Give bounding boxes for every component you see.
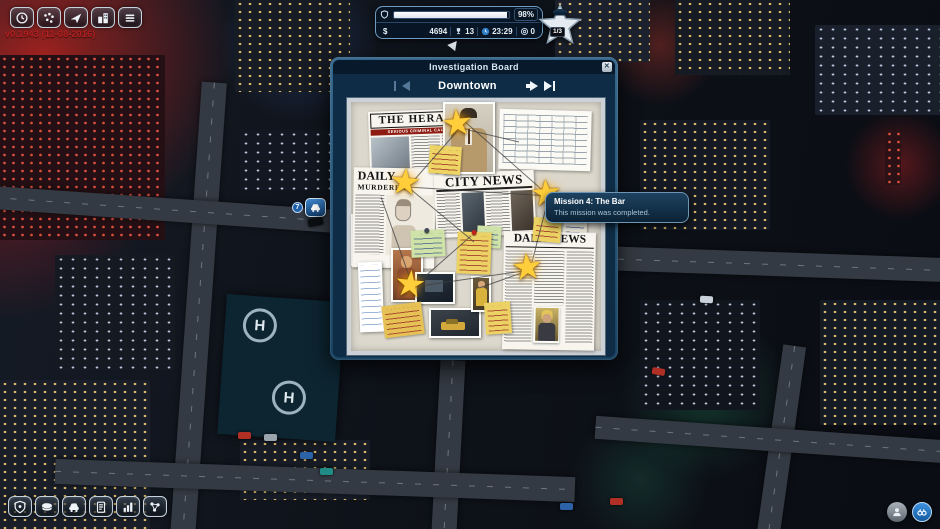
dialog-title: Investigation Board [429, 62, 519, 72]
sticky-note-yellow-bottom[interactable] [484, 301, 512, 335]
police-badge-icon[interactable] [8, 496, 32, 517]
game-screen: H H v0.1943 (11-08-2016) [0, 0, 940, 529]
trust-shield-icon [380, 10, 389, 19]
parked-car [610, 498, 623, 505]
nav-next-icon[interactable] [526, 81, 538, 91]
reports-icon[interactable] [89, 496, 113, 517]
corner-buttons [887, 502, 932, 522]
unit-count-badge: 7 [292, 202, 303, 213]
clock-icon[interactable] [10, 7, 34, 28]
parked-car [264, 434, 277, 441]
mission-star-4[interactable]: ★ [392, 264, 428, 303]
coin-icon [520, 27, 529, 36]
city-hall-icon[interactable] [91, 7, 115, 28]
mission-star-1[interactable]: ★ [439, 103, 475, 142]
photo-taxi[interactable] [429, 308, 481, 338]
rank-star-count: 1/3 [550, 27, 565, 37]
sticky-note-yellow[interactable] [428, 145, 462, 175]
person-icon[interactable] [887, 502, 907, 522]
navigation-arrow-icon[interactable] [64, 7, 88, 28]
close-icon[interactable]: ✕ [602, 62, 612, 72]
coin-counter: 0 [516, 27, 538, 36]
coin-value: 0 [531, 27, 535, 36]
nav-first-icon[interactable] [394, 81, 396, 91]
version-label: v0.1943 (11-08-2016) [5, 29, 96, 39]
push-pin [424, 228, 429, 233]
parked-car [320, 468, 333, 475]
tooltip-title: Mission 4: The Bar [554, 197, 680, 206]
ledger-sheet[interactable] [498, 109, 592, 171]
bottom-toolbar [8, 496, 167, 517]
district-name-label: Downtown [436, 80, 500, 92]
network-icon[interactable] [143, 496, 167, 517]
progress-percent-label: 98% [514, 8, 538, 21]
trophy-counter: 13 [450, 27, 477, 36]
building [815, 25, 940, 115]
top-toolbar [10, 7, 142, 28]
money-value: 4694 [389, 27, 447, 36]
building [820, 300, 940, 425]
handwritten-list[interactable] [358, 262, 384, 333]
money-counter: $ 4694 [380, 27, 450, 36]
trophy-value: 13 [465, 27, 474, 36]
dialog-titlebar[interactable]: Investigation Board ✕ [333, 60, 615, 74]
mission-star-5[interactable]: ★ [509, 248, 544, 287]
sticky-note-orange[interactable] [381, 302, 425, 339]
hud-panel: 98% $ 4694 13 23:29 0 [375, 6, 543, 39]
task-list-icon[interactable] [118, 7, 142, 28]
building [675, 0, 790, 75]
time-icon [481, 27, 490, 36]
helipad-h-mark: H [271, 379, 307, 415]
city-news-masthead: CITY NEWS [436, 172, 532, 189]
clock-counter: 23:29 [477, 27, 515, 36]
evidence-board: THE HERALD SERIOUS CRIMINAL CAUGHT [347, 98, 605, 355]
photo-blonde-suspect [533, 306, 560, 342]
building [240, 130, 330, 190]
district-navigation: Downtown [333, 74, 615, 98]
building [640, 300, 760, 410]
mission-star-2[interactable]: ★ [387, 163, 422, 202]
helipad-h-mark: H [242, 307, 278, 343]
nav-prev-icon[interactable] [402, 81, 410, 91]
parked-car [300, 452, 313, 459]
police-unit-marker[interactable]: 7 [292, 196, 332, 226]
statistics-icon[interactable] [116, 496, 140, 517]
nav-last-icon[interactable] [544, 81, 555, 91]
suv-on-street [307, 217, 323, 228]
binoculars-icon[interactable] [912, 502, 932, 522]
trophy-icon [454, 27, 463, 36]
crime-map-icon[interactable] [37, 7, 61, 28]
nav-next-last[interactable] [526, 81, 555, 91]
sticky-note-green[interactable] [410, 229, 445, 258]
dollar-icon: $ [383, 27, 387, 36]
neon-sign [885, 130, 901, 185]
rank-star-badge[interactable]: 1/3 [538, 3, 582, 49]
mission-tooltip: Mission 4: The Bar This mission was comp… [545, 192, 689, 223]
tooltip-body: This mission was completed. [554, 208, 680, 217]
parked-car [560, 503, 573, 510]
sticky-note-yellow-pinned[interactable] [456, 231, 491, 274]
patrol-car-marker-icon[interactable] [305, 198, 326, 217]
parked-car [700, 296, 713, 304]
building [55, 255, 175, 370]
police-cap-icon[interactable] [35, 496, 59, 517]
progress-bar [393, 11, 510, 19]
push-pin-red [472, 230, 477, 235]
time-value: 23:29 [492, 27, 512, 36]
helipad-rooftop: H H [217, 294, 344, 442]
patrol-car-icon[interactable] [62, 496, 86, 517]
nav-first-prev[interactable] [394, 81, 410, 91]
parked-car [238, 432, 251, 439]
